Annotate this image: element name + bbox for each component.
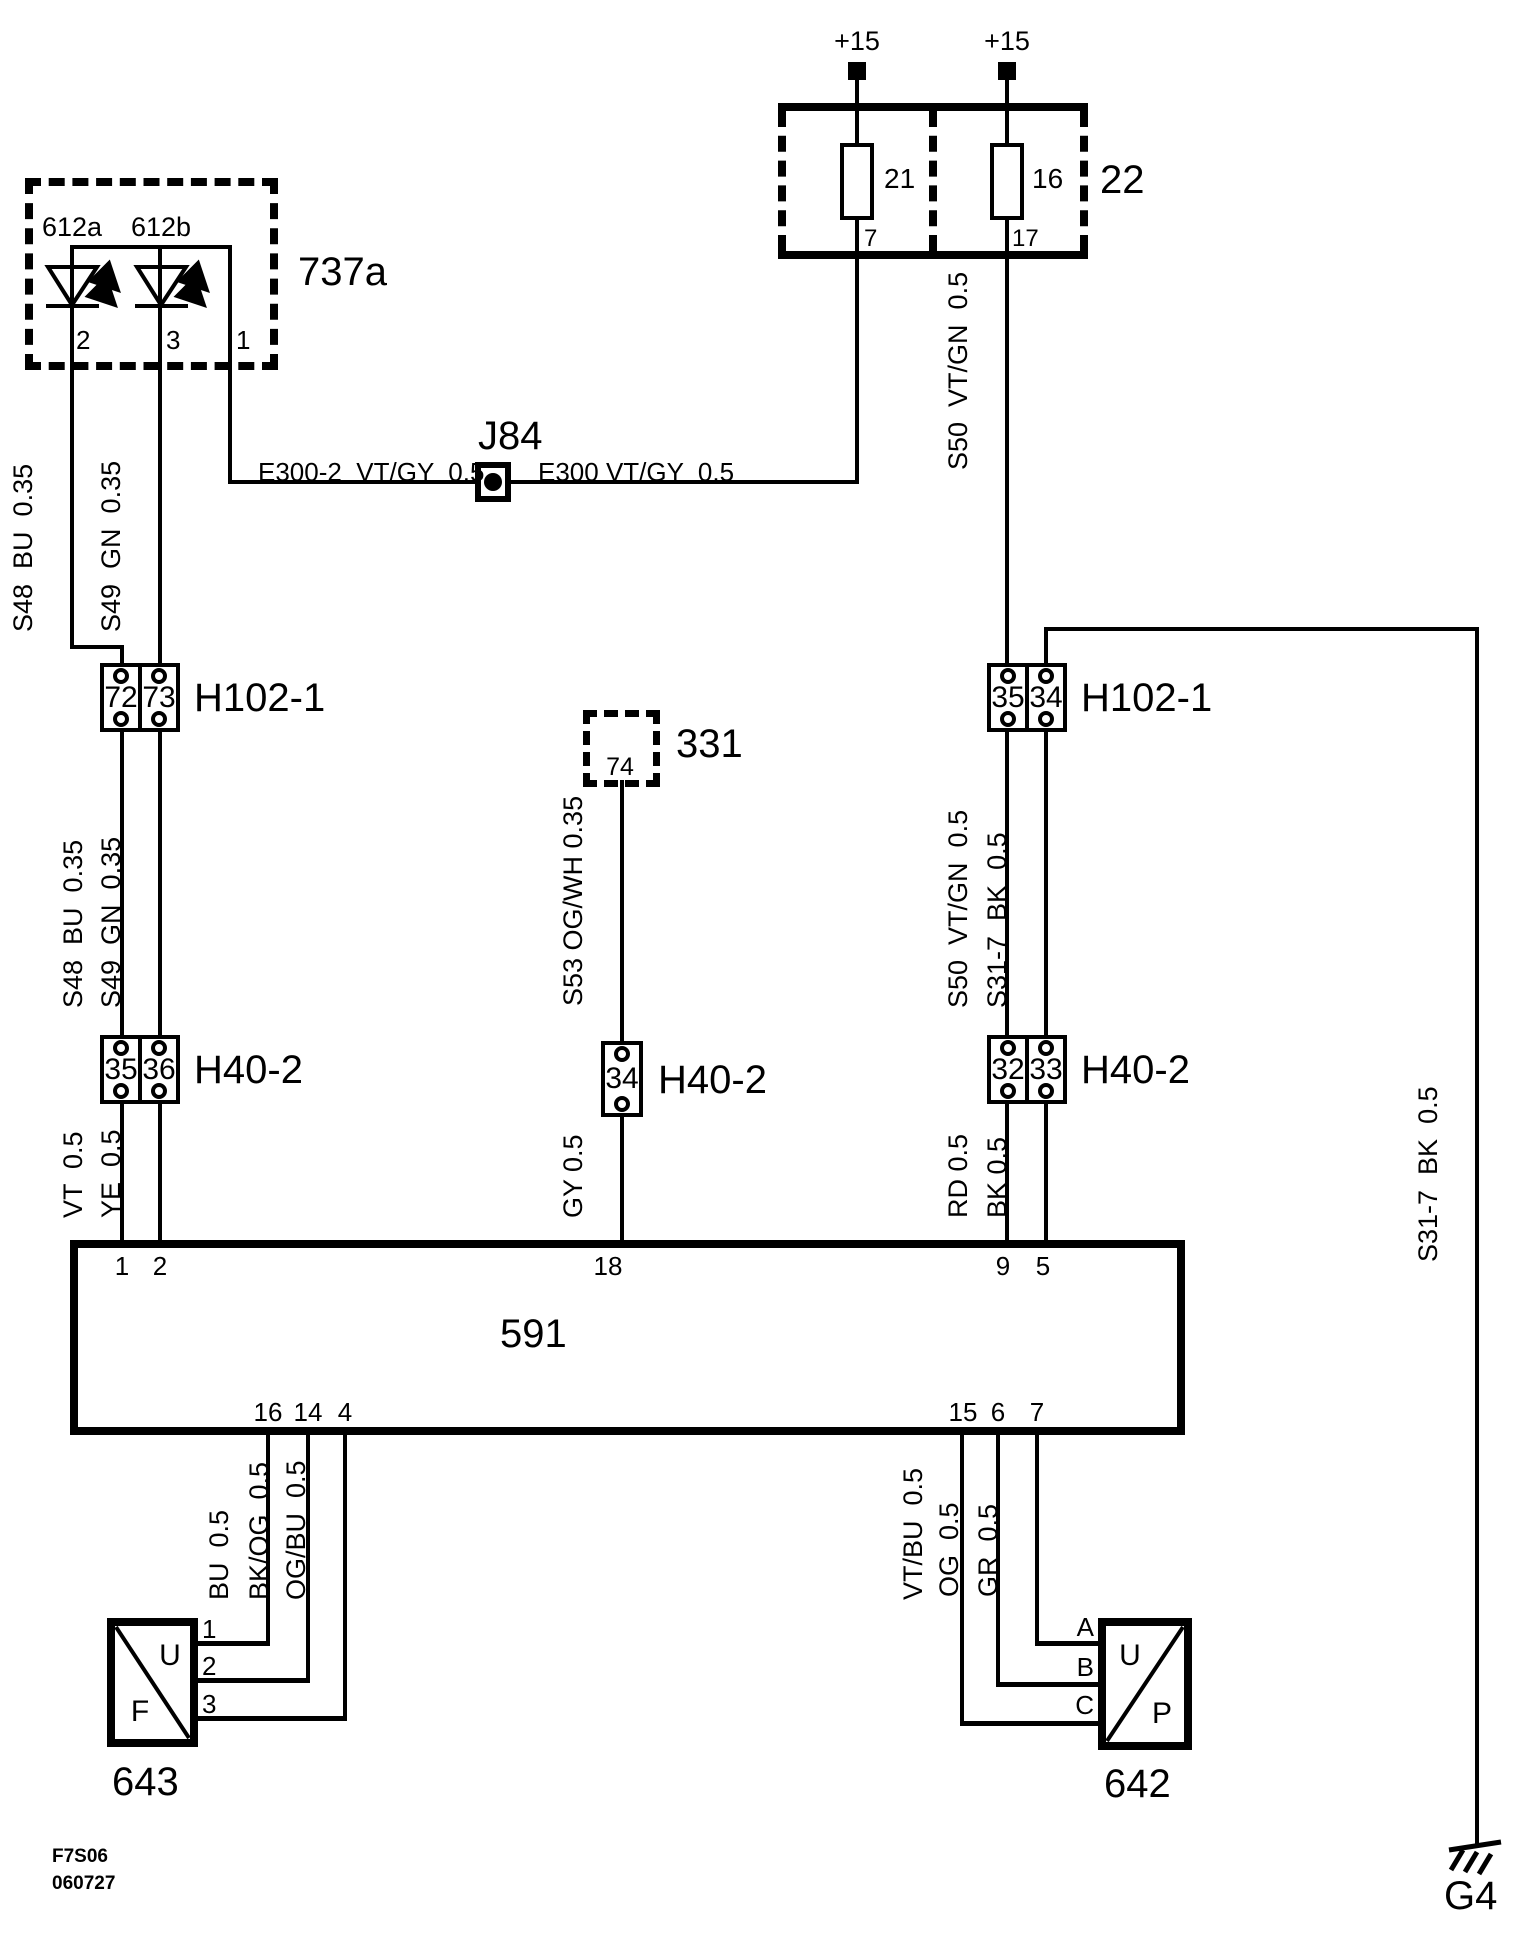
wire-642-pinC-stub: [960, 1721, 1100, 1726]
connector-pin-35: 35: [991, 667, 1025, 728]
ecu-pin-6: 6: [980, 1398, 1016, 1426]
ecu-pin-5: 5: [1025, 1252, 1061, 1280]
lamp-pin-2: 2: [76, 326, 90, 354]
connector-h40-left: 35 36: [100, 1035, 180, 1104]
connector-h40-mid: 34: [601, 1041, 643, 1117]
ecu-pin-18: 18: [588, 1252, 628, 1280]
wire-fuse16-top: [1005, 78, 1009, 145]
wire-label-s49-lower: S49 GN 0.35: [96, 837, 126, 1008]
terminal-icon: [1038, 668, 1054, 684]
wire-label-s31-mid: S31-7 BK 0.5: [982, 832, 1012, 1008]
terminal-icon: [113, 1083, 129, 1099]
fusebox-bottom-edge: [778, 251, 1088, 259]
terminal-icon: [113, 711, 129, 727]
terminal-icon: [1000, 711, 1016, 727]
comp-642-pin-b: B: [1068, 1653, 1094, 1681]
connector-h102-right-label: H102-1: [1081, 676, 1212, 720]
fusebox-top-edge: [778, 103, 1088, 111]
ecu-pin-14: 14: [288, 1398, 328, 1426]
wire-s53: [620, 780, 624, 1045]
wire-label-s50-lower: S50 VT/GN 0.5: [943, 810, 973, 1008]
fusebox-divider: [929, 111, 937, 251]
wire-gy: [620, 1113, 624, 1240]
terminal-icon: [113, 1040, 129, 1056]
ecu-pin-15: 15: [943, 1398, 983, 1426]
ecu-pin-4: 4: [327, 1398, 363, 1426]
comp-642-letter-p: P: [1144, 1698, 1180, 1730]
wire-s31-top-horizontal: [1044, 627, 1479, 631]
terminal-icon: [151, 711, 167, 727]
led-left-label: 612a: [42, 212, 102, 242]
terminal-icon: [113, 668, 129, 684]
fuse-21-pin: 7: [864, 226, 877, 252]
wire-gr: [1035, 1435, 1039, 1646]
wire-s48-jog: [70, 645, 124, 649]
terminal-icon: [1038, 1083, 1054, 1099]
comp-643-letter-f: F: [122, 1696, 158, 1728]
connector-pin-32: 32: [991, 1039, 1025, 1100]
ground-label: G4: [1444, 1874, 1497, 1918]
lamp-pin-3: 3: [166, 326, 180, 354]
wire-label-gr: GR 0.5: [973, 1504, 1003, 1597]
wire-label-s49-upper: S49 GN 0.35: [96, 461, 126, 632]
comp-642-label: 642: [1104, 1762, 1171, 1806]
lamp-pin-1: 1: [236, 326, 250, 354]
box-331-label: 331: [676, 722, 743, 766]
fuse-21-number: 21: [884, 164, 915, 194]
wire-label-s48-upper: S48 BU 0.35: [8, 464, 38, 632]
supply-label-left: +15: [817, 26, 897, 56]
connector-pin-34: 34: [1025, 667, 1063, 728]
terminal-icon: [1038, 711, 1054, 727]
fuse-16-number: 16: [1032, 164, 1063, 194]
footer-code: F7S06: [52, 1844, 108, 1870]
connector-h102-left-label: H102-1: [194, 676, 325, 720]
comp-643-pin-2: 2: [202, 1652, 216, 1680]
wire-label-gy: GY 0.5: [558, 1134, 588, 1218]
led-right-label: 612b: [131, 212, 191, 242]
footer-date: 060727: [52, 1871, 115, 1897]
ecu-pin-16: 16: [248, 1398, 288, 1426]
wire-label-rd: RD 0.5: [943, 1134, 973, 1218]
wire-label-s31-right: S31-7 BK 0.5: [1413, 1086, 1443, 1262]
comp-642-pin-c: C: [1068, 1691, 1094, 1719]
wire-fuse21-bottom: [855, 220, 859, 484]
supply-terminal-left: [848, 62, 866, 80]
lamp-unit-label: 737a: [298, 250, 387, 294]
supply-terminal-right: [998, 62, 1016, 80]
comp-643-pin-1: 1: [202, 1615, 216, 1643]
fusebox-left-edge: [778, 111, 786, 251]
ecu-pin-7: 7: [1019, 1398, 1055, 1426]
terminal-icon: [151, 1040, 167, 1056]
comp-642-pin-a: A: [1068, 1613, 1094, 1641]
box-331-pin-74: 74: [600, 754, 640, 781]
fuse-16-symbol: [990, 143, 1024, 220]
wire-label-vt: VT 0.5: [58, 1131, 88, 1218]
connector-h40-mid-label: H40-2: [658, 1058, 767, 1102]
wire-label-e300: E300 VT/GY 0.5: [538, 458, 734, 486]
connector-h40-right: 32 33: [987, 1035, 1067, 1104]
wire-label-og: OG 0.5: [934, 1502, 964, 1597]
ecu-591-label: 591: [500, 1312, 567, 1356]
connector-h102-right: 35 34: [987, 663, 1067, 732]
terminal-icon: [1000, 1083, 1016, 1099]
comp-643-pin-3: 3: [202, 1690, 216, 1718]
wire-label-vtbu: VT/BU 0.5: [898, 1468, 928, 1600]
comp-642-letter-u: U: [1112, 1640, 1148, 1672]
connector-pin-33: 33: [1025, 1039, 1063, 1100]
junction-j84-dot: [484, 473, 502, 491]
supply-label-right: +15: [967, 26, 1047, 56]
wire-s31-right-vertical: [1475, 627, 1479, 1845]
terminal-icon: [1000, 1040, 1016, 1056]
ecu-pin-9: 9: [987, 1252, 1019, 1280]
wire-ogbu: [343, 1435, 347, 1721]
wire-label-e300-2: E300-2 VT/GY 0.5: [258, 458, 484, 486]
connector-pin-35b: 35: [104, 1039, 138, 1100]
wire-pin34-stub: [1044, 627, 1048, 667]
wire-label-ogbu: OG/BU 0.5: [281, 1460, 311, 1600]
terminal-icon: [151, 668, 167, 684]
comp-643-letter-u: U: [152, 1640, 188, 1672]
fusebox-right-edge: [1080, 111, 1088, 251]
wire-s31-mid: [1044, 728, 1048, 1039]
junction-j84-label: J84: [478, 414, 543, 458]
wire-label-s53: S53 OG/WH 0.35: [558, 796, 588, 1006]
wiring-diagram: +15 +15 21 16 7 17 22 612a 612b 2 3 1 73…: [0, 0, 1536, 1934]
wire-label-bkog: BK/OG 0.5: [244, 1462, 274, 1600]
connector-pin-73: 73: [138, 667, 176, 728]
fuse-16-pin: 17: [1012, 226, 1039, 252]
wire-fuse21-top: [855, 78, 859, 145]
connector-pin-34m: 34: [605, 1045, 639, 1113]
ecu-pin-1: 1: [106, 1252, 138, 1280]
wire-label-bu: BU 0.5: [204, 1510, 234, 1600]
connector-h40-left-label: H40-2: [194, 1048, 303, 1092]
connector-h102-left: 72 73: [100, 663, 180, 732]
fuse-21-symbol: [840, 143, 874, 220]
wire-643-pin3-stub: [196, 1716, 345, 1721]
comp-642-diagonal: [1098, 1618, 1192, 1750]
connector-pin-72: 72: [104, 667, 138, 728]
terminal-icon: [151, 1083, 167, 1099]
connector-h40-right-label: H40-2: [1081, 1048, 1190, 1092]
wire-label-s50-upper: S50 VT/GN 0.5: [943, 272, 973, 470]
wire-label-bk: BK 0.5: [982, 1137, 1012, 1218]
ecu-pin-2: 2: [144, 1252, 176, 1280]
wire-642-pinB-stub: [996, 1682, 1100, 1687]
terminal-icon: [614, 1046, 630, 1062]
wire-label-s48-lower: S48 BU 0.35: [58, 840, 88, 1008]
terminal-icon: [1038, 1040, 1054, 1056]
comp-643-label: 643: [112, 1760, 179, 1804]
wire-ye: [158, 1100, 162, 1240]
wire-s50-upper: [1005, 220, 1009, 667]
connector-pin-36: 36: [138, 1039, 176, 1100]
wire-s49-lower: [158, 728, 162, 1039]
terminal-icon: [1000, 668, 1016, 684]
wire-label-ye: YE 0.5: [96, 1129, 126, 1218]
fusebox-label: 22: [1100, 158, 1145, 202]
terminal-icon: [614, 1096, 630, 1112]
wire-bk: [1044, 1100, 1048, 1240]
